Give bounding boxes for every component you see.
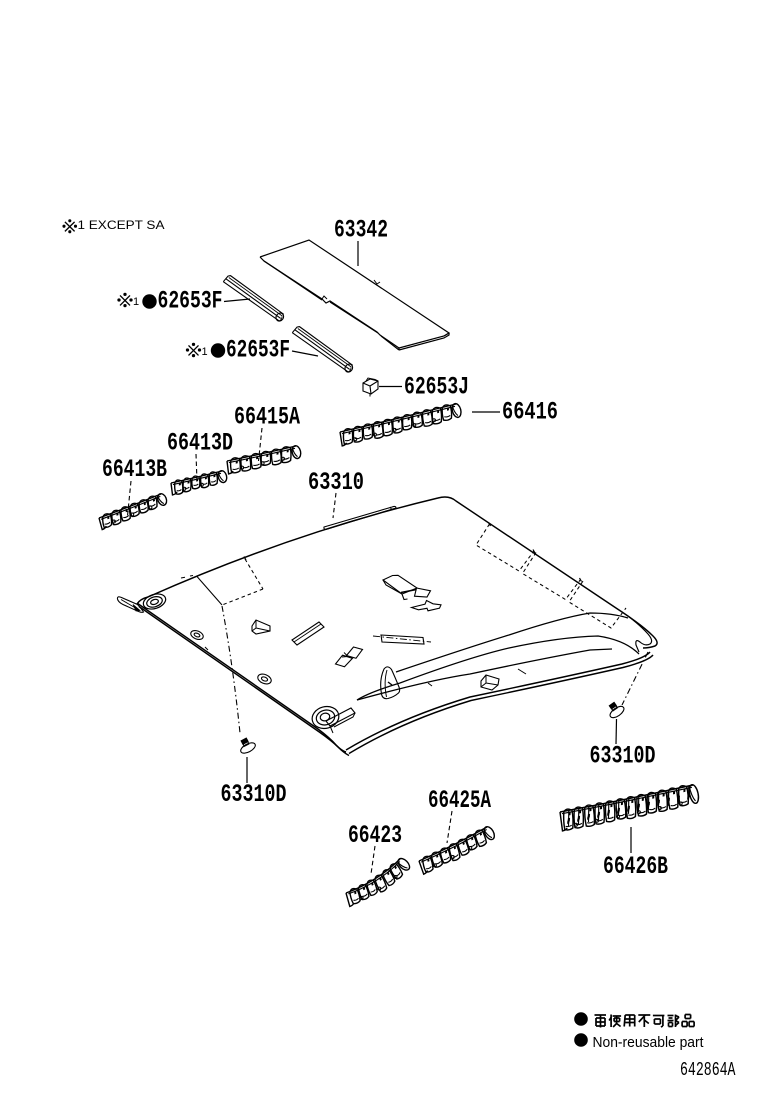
svg-text:63342: 63342 — [334, 216, 388, 245]
svg-text:63310: 63310 — [308, 468, 364, 497]
svg-text:Non-reusable part: Non-reusable part — [593, 1034, 705, 1051]
svg-text:66425A: 66425A — [428, 786, 491, 815]
svg-text:1: 1 — [133, 296, 139, 308]
svg-text:642864A: 642864A — [680, 1059, 736, 1081]
svg-text:1: 1 — [202, 346, 208, 358]
svg-text:1 EXCEPT SA: 1 EXCEPT SA — [78, 218, 165, 232]
svg-text:66413B: 66413B — [102, 455, 167, 484]
svg-text:66416: 66416 — [502, 398, 558, 427]
svg-text:66423: 66423 — [348, 821, 402, 850]
svg-text:62653J: 62653J — [404, 373, 469, 402]
svg-text:62653F: 62653F — [226, 336, 290, 365]
svg-text:62653F: 62653F — [158, 287, 223, 316]
svg-text:63310D: 63310D — [590, 742, 656, 771]
svg-text:66415A: 66415A — [234, 403, 300, 432]
svg-text:66426B: 66426B — [603, 852, 668, 881]
svg-text:63310D: 63310D — [221, 780, 287, 809]
svg-text:66413D: 66413D — [167, 429, 233, 458]
